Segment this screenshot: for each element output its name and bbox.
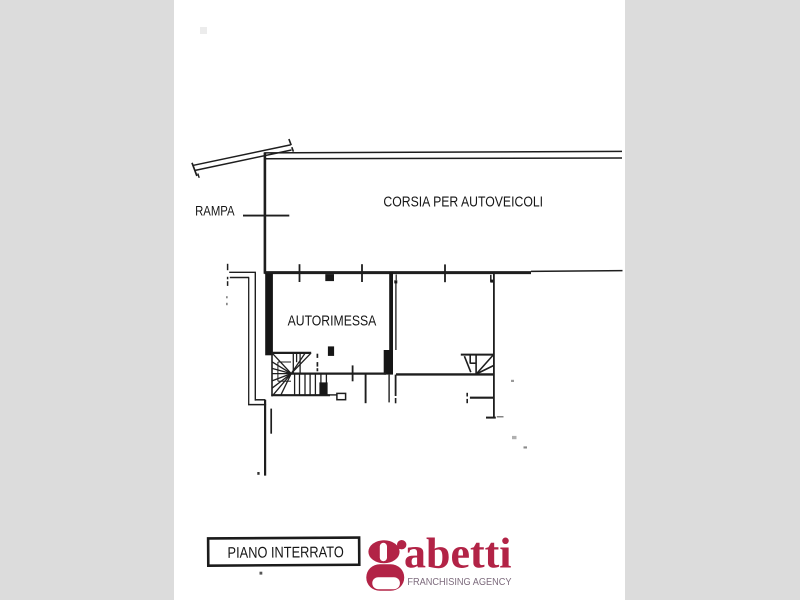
- svg-text:abetti: abetti: [404, 531, 512, 578]
- svg-text:AUTORIMESSA: AUTORIMESSA: [288, 312, 377, 329]
- svg-text:FRANCHISING AGENCY: FRANCHISING AGENCY: [407, 577, 511, 588]
- svg-text:PIANO INTERRATO: PIANO INTERRATO: [227, 544, 343, 562]
- svg-text:RAMPA: RAMPA: [195, 204, 235, 219]
- svg-text:CORSIA PER AUTOVEICOLI: CORSIA PER AUTOVEICOLI: [383, 194, 543, 211]
